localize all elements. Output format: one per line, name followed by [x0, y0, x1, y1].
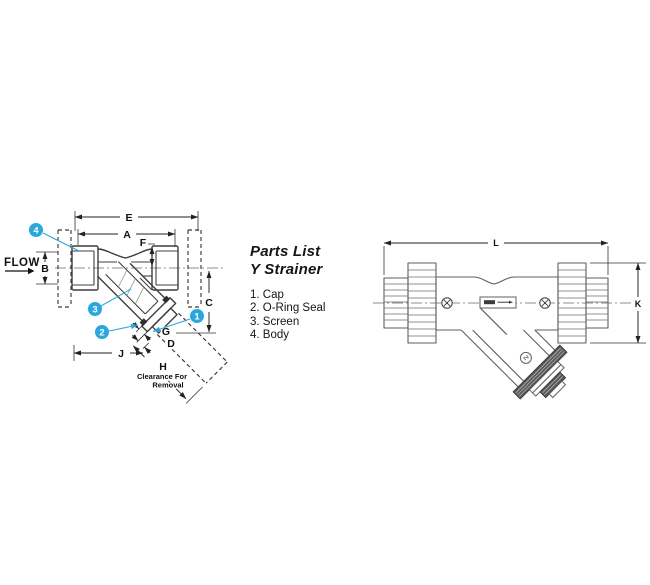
dim-g: G	[133, 323, 170, 342]
callout-1-number: 1	[194, 312, 200, 323]
callout-2-oring: 2	[95, 325, 138, 339]
dim-label-f: F	[140, 237, 147, 249]
parts-list: Parts List Y Strainer 1. Cap 2. O-Ring S…	[250, 243, 325, 343]
body-flow-marking	[480, 297, 516, 308]
callout-2-number: 2	[99, 328, 104, 339]
dim-d: D	[133, 335, 176, 353]
dim-label-c: C	[205, 297, 213, 309]
right-branch	[454, 286, 582, 414]
cap-collar	[142, 298, 176, 332]
flow-label: FLOW	[4, 257, 40, 269]
y-strainer-diagram-page: E A F B C	[0, 0, 650, 585]
right-pipe-dashed	[188, 230, 201, 307]
dim-label-j: J	[118, 348, 124, 360]
dim-a: A	[78, 229, 175, 247]
dim-label-d: D	[167, 338, 175, 350]
callout-4-number: 4	[33, 226, 39, 237]
parts-list-item-screen: 3. Screen	[250, 316, 325, 329]
dim-k: K	[590, 263, 646, 343]
right-screw-icon	[540, 298, 550, 308]
dim-e: E	[75, 211, 198, 231]
callout-1-cap: 1	[153, 309, 204, 332]
parts-list-item-cap: 1. Cap	[250, 289, 325, 302]
dim-label-e: E	[125, 212, 132, 224]
parts-list-item-oring: 2. O-Ring Seal	[250, 302, 325, 315]
cap-face-mark	[518, 350, 534, 366]
dim-c: C	[176, 271, 216, 333]
parts-list-title-line1: Parts List	[250, 243, 325, 261]
right-view: L K	[373, 238, 646, 414]
clearance-note-line2: Removal	[152, 381, 183, 390]
dim-label-l: L	[493, 238, 499, 248]
parts-list-title-line2: Y Strainer	[250, 261, 325, 279]
dim-label-b: B	[41, 263, 49, 275]
left-screw-icon	[442, 298, 452, 308]
dim-l: L	[384, 238, 608, 275]
flow-indicator: FLOW	[4, 257, 40, 274]
left-view: E A F B C	[4, 211, 231, 404]
dim-h: H Clearance For Removal	[133, 346, 202, 404]
dim-j: J	[74, 345, 143, 361]
right-view-body	[436, 277, 558, 330]
dim-label-k: K	[635, 299, 642, 309]
parts-list-item-body: 4. Body	[250, 329, 325, 342]
callout-3-number: 3	[92, 305, 97, 316]
dim-label-a: A	[123, 229, 131, 241]
